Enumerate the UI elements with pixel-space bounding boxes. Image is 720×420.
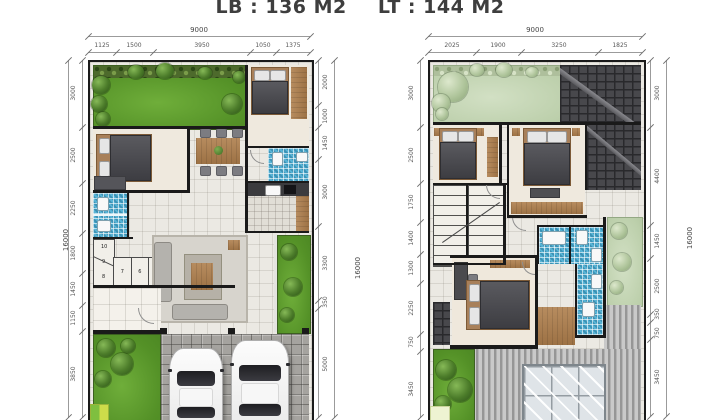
car [231,340,289,420]
dim-line [650,60,651,416]
dim-tick [307,33,314,40]
wall [575,264,577,337]
chair [232,166,243,176]
car-windshield [239,365,281,381]
pillow [469,307,480,325]
blanket [110,135,151,181]
dim-tick [331,414,338,420]
dim-line [334,60,335,418]
dim-label: 3000 [322,174,330,210]
sink [296,152,308,162]
toilet [582,302,595,317]
building-area-label: LB : 136 M2 [215,0,346,18]
dim-label: 3000 [70,75,78,111]
land-area-label: LT : 144 M2 [378,0,505,18]
wall [507,122,509,217]
nightstand [512,128,520,136]
dim-line [82,60,83,418]
wall [507,215,587,218]
toilet [576,230,588,245]
stove [284,185,296,194]
bush [233,71,245,83]
dim-tick [663,413,670,420]
wall [247,146,309,148]
car [169,348,223,420]
dresser [94,176,126,190]
toilet [272,152,283,166]
nightstand [572,128,580,136]
table-plant [214,146,223,155]
dim-tick [639,33,646,40]
bush [121,339,135,353]
dim-label: 1825 [600,42,640,50]
dim-label: 3450 [408,371,416,407]
dim-total-width: 9000 [169,26,229,34]
pillow [547,131,567,143]
door-arc [512,217,526,231]
pillow [442,131,458,142]
bush [436,360,456,380]
bush [222,94,242,114]
dim-line [428,36,642,37]
wardrobe [487,137,498,177]
wall [433,263,506,265]
roof-ridge [587,124,641,178]
dim-tick [639,49,646,56]
pillow [99,138,110,154]
wall [245,65,248,233]
dim-label: 750 [654,315,662,351]
dim-label: 3300 [322,245,330,281]
bed [439,128,477,180]
wall [503,185,506,265]
wall [499,122,502,185]
dim-line [428,52,642,53]
dim-label: 1750 [408,184,416,220]
pillow [469,284,480,302]
dim-total-height: 16000 [354,238,362,298]
bench [530,188,560,198]
garden-view [433,65,562,124]
dim-total-width: 9000 [505,26,565,34]
dim-tick [307,49,314,56]
dim-tick [79,414,86,420]
door-arc [250,150,264,164]
sink [591,274,602,289]
bush [97,339,115,357]
metal-roof [604,305,641,349]
bush [470,64,484,76]
title-row: LB : 136 M2 LT : 144 M2 [0,0,720,18]
kitchen-cabinet [296,196,309,233]
dim-label: 1150 [70,300,78,336]
wall [537,225,604,227]
dim-label: 3000 [654,75,662,111]
bush [436,108,448,120]
nightstand [476,128,484,136]
blanket [440,142,476,179]
bush [610,281,623,294]
dim-label: 3950 [182,42,222,50]
stair-number: 6 [138,269,141,275]
pillow [458,131,474,142]
pillow [527,131,547,143]
bed [96,134,152,182]
dim-label: 1450 [322,125,330,161]
stair-divider [93,256,115,267]
pillow [99,161,110,177]
bush [128,65,144,79]
chair [216,166,227,176]
dim-label: 2500 [408,137,416,173]
wall [93,190,190,193]
side-table [228,240,240,250]
toilet [97,197,109,211]
roof-tiles [587,122,641,190]
dim-tick [65,414,72,420]
wall [127,193,129,239]
stair-tread: 6 [132,258,150,286]
wall [569,227,571,264]
dim-label: 3000 [408,75,416,111]
car-roof [179,388,213,407]
roof-ridge [560,65,641,122]
bush [284,278,302,296]
dim-label: 2250 [70,190,78,226]
coffee-table [184,254,222,300]
bush [156,63,174,79]
stair-number: 8 [102,274,105,280]
dim-line [420,60,421,418]
staircase-landing: 10 9 8 [93,239,115,287]
stair-number: 7 [121,269,124,275]
chair [216,128,227,138]
dim-line [68,60,69,418]
wall [535,255,538,347]
dim-label: 2000 [322,64,330,100]
car-mirror [286,363,290,366]
wood-deck [537,307,575,345]
garden [93,65,247,130]
blanket [480,281,529,329]
dim-label: 1450 [654,223,662,259]
bush [111,353,133,375]
chair [200,128,211,138]
legend-marker [90,404,109,420]
dim-label: 5000 [322,346,330,382]
roof-tiles [433,302,450,345]
sofa [172,304,228,320]
dim-label: 4400 [654,158,662,194]
wall [450,255,537,258]
car-rear-window [239,404,281,416]
car-mirror [168,369,172,372]
bush [496,63,512,77]
wall [247,181,309,183]
dim-label: 3850 [70,356,78,392]
bush [448,378,472,402]
car-rear-window [177,407,215,418]
car-mirror [230,363,234,366]
pillow [270,70,286,81]
dim-label: 750 [408,324,416,360]
dim-label: 2500 [70,137,78,173]
bush [281,244,297,260]
sink [97,220,111,232]
wall [247,231,309,233]
floorplan-sheet: LB : 136 M2 LT : 144 M2 9000 1125 1500 3… [0,0,720,420]
stair-number: 10 [101,244,107,250]
planter [607,217,643,307]
chair [200,166,211,176]
dim-label: 350 [322,284,330,320]
wall [433,122,641,125]
dim-label: 3450 [654,359,662,395]
bush [613,253,631,271]
dim-tick [647,413,654,420]
wall [93,285,235,288]
wall [450,345,538,349]
wall [187,128,190,192]
wardrobe [511,202,583,214]
tile-joint [93,214,127,216]
car-roof [241,383,279,404]
dim-label: 2025 [432,42,472,50]
bush [526,67,538,77]
wall [433,183,508,185]
dim-line [318,60,319,418]
roof-tiles [560,65,641,122]
wardrobe [291,67,307,119]
legend-marker [430,406,450,420]
bush [611,223,627,239]
stair-tread: 7 [114,258,132,286]
pillow [254,70,270,81]
wall [603,217,606,338]
dim-label: 1900 [478,42,518,50]
wall [93,126,246,129]
upper-floor-plan [428,60,646,420]
car-windshield [177,371,215,386]
dim-tick [417,414,424,420]
wall [585,122,587,190]
dim-label: 2250 [408,290,416,326]
blanket [252,81,288,114]
dim-label: 1800 [70,235,78,271]
bush [280,308,294,322]
bush [96,112,110,126]
dim-line [666,60,667,416]
kitchen-sink [265,185,281,196]
side-garden [277,235,311,334]
bed [251,67,289,115]
dim-total-height: 16000 [686,208,694,268]
car-mirror [220,369,224,372]
dim-label: 1300 [408,250,416,286]
sink [591,248,602,262]
skylight [522,364,606,420]
wall [93,237,133,239]
ground-floor-plan: 10 9 8 7 6 5 4 3 2 1 [88,60,314,420]
dim-label: 3250 [539,42,579,50]
dim-line [88,36,310,37]
bush [198,67,212,79]
chair [232,128,243,138]
bush [95,371,111,387]
wall [575,335,606,338]
bed [523,128,571,186]
blanket [524,143,570,185]
bathtub [542,231,566,245]
bush [91,96,107,112]
bush [92,76,110,94]
bed [466,280,530,330]
dim-tick [315,414,322,420]
